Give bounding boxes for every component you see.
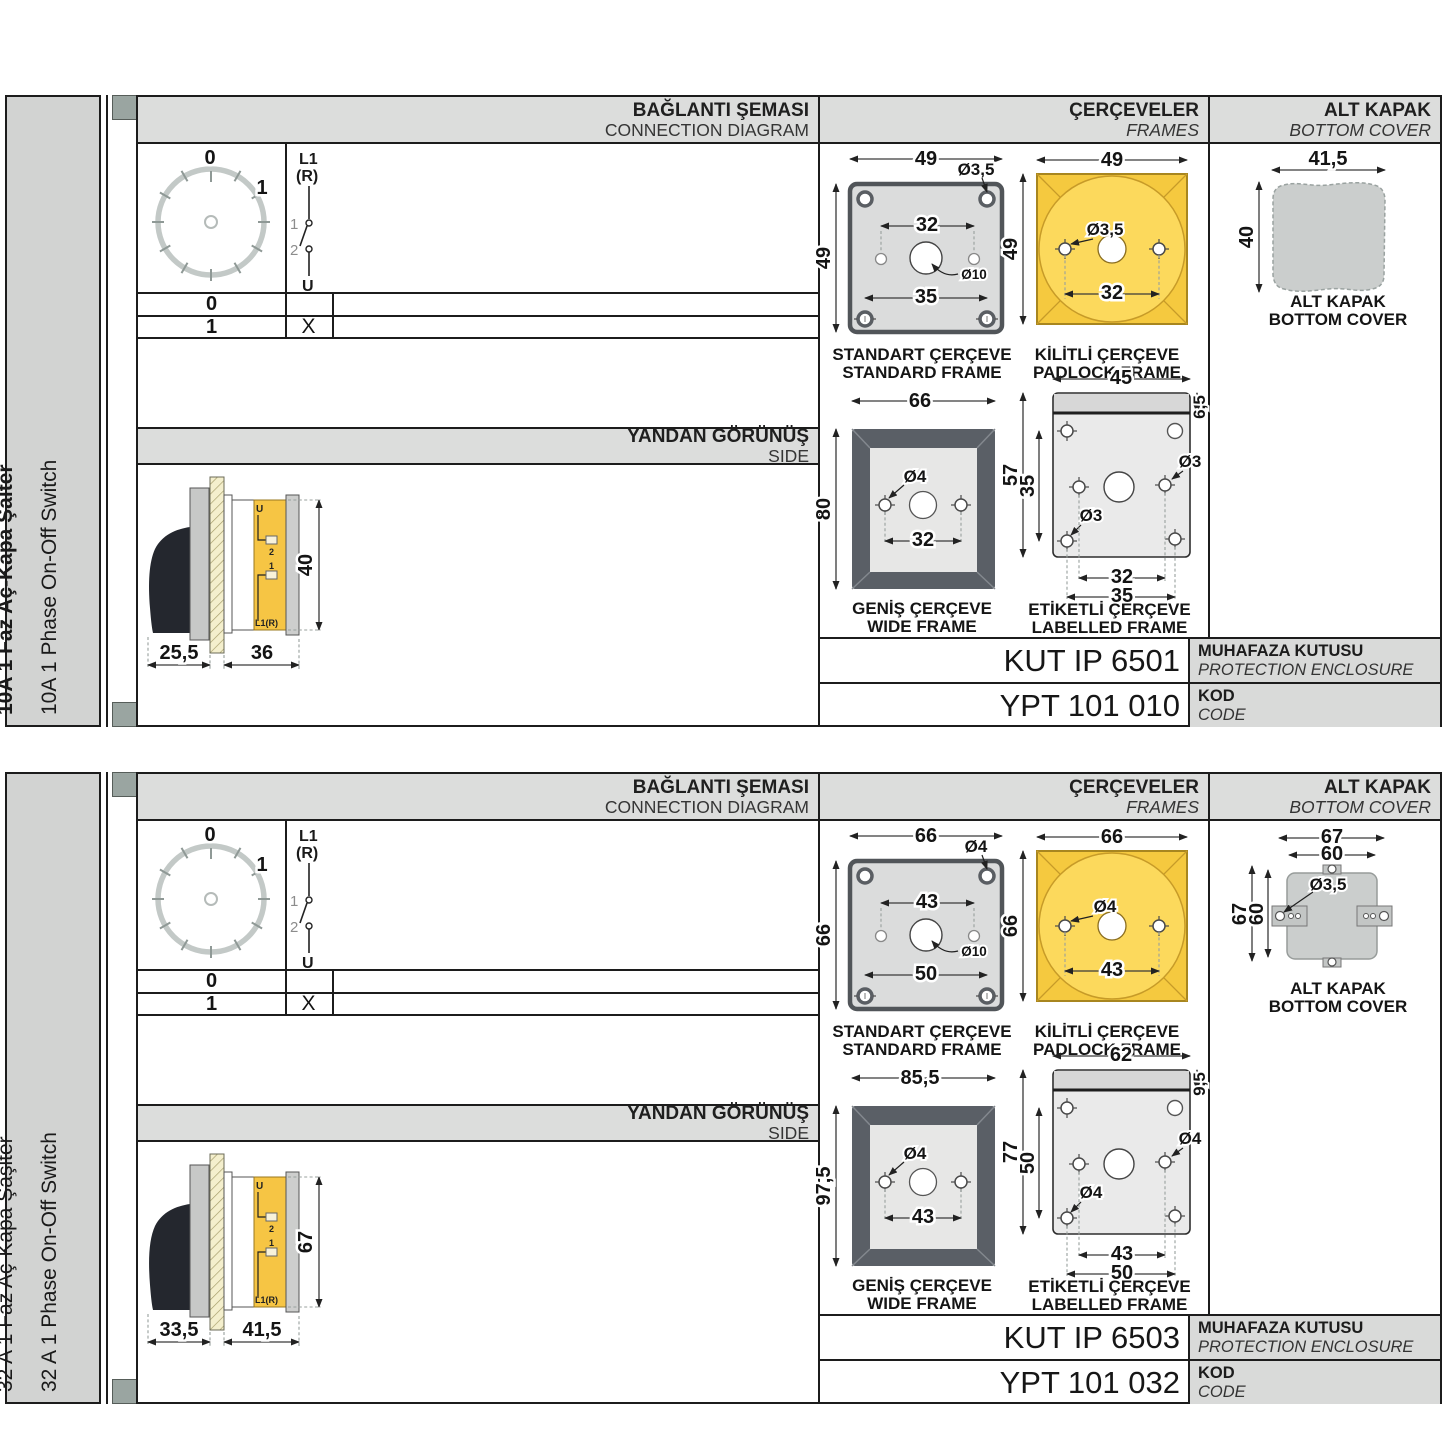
rotary-dial-diagram: 0 1 (138, 144, 285, 292)
body-label-2: 2 (269, 1224, 274, 1234)
labelled-hole-callout-a: Ø3 (1179, 452, 1202, 471)
body-label-l1r: L1(R) (255, 1295, 278, 1305)
switch-body (232, 1177, 254, 1307)
switch-symbol-diagram: L1 (R) U 1 2 (285, 144, 345, 294)
enclosure-label-en: PROTECTION ENCLOSURE (1198, 661, 1440, 680)
wide-hole-callout: Ø4 (904, 1144, 927, 1163)
product-title-english: 32 A 1 Phase On-Off Switch (39, 1132, 61, 1392)
header-connection-en: CONNECTION DIAGRAM (605, 121, 809, 140)
labelled-dim-left-inner: 35 (1017, 475, 1039, 497)
header-side-view: YANDAN GÖRÜNÜŞ SIDE (138, 1104, 818, 1142)
index-strip (106, 95, 136, 727)
enclosure-info-cell: MUHAFAZA KUTUSU PROTECTION ENCLOSURE (1188, 1316, 1440, 1359)
padlock-dim-top: 66 (1101, 826, 1123, 848)
side-dim-height: 40 (295, 554, 317, 576)
wide-dim-inner: 32 (912, 529, 934, 551)
body-label-1: 1 (269, 1238, 274, 1248)
labelled-frame-drawing: 62 9,5 77 50 Ø4 Ø4 43 50 (1007, 1046, 1212, 1286)
labelled-caption-en: LABELLED FRAME (1012, 619, 1207, 637)
cover-caption-en: BOTTOM COVER (1233, 998, 1443, 1016)
padlock-dim-top: 49 (1101, 149, 1123, 171)
labelled-hole-callout-a: Ø4 (1179, 1129, 1202, 1148)
header-frames-en: FRAMES (1126, 121, 1199, 140)
standard-dim-top: 66 (915, 825, 937, 847)
dial-position-1: 1 (256, 177, 267, 199)
product-title-turkish: 32 A 1 Faz Aç-Kapa Şaşlter (0, 1136, 17, 1392)
header-connection-diagram: BAĞLANTI ŞEMASI CONNECTION DIAGRAM (138, 774, 818, 821)
standard-dim-bottom: 50 (915, 963, 937, 985)
standard-caption-en: STANDARD FRAME (827, 1041, 1017, 1059)
wide-frame-drawing: 66 80 Ø4 32 (822, 385, 1022, 635)
catalog-panel: BAĞLANTI ŞEMASI CONNECTION DIAGRAM ÇERÇE… (136, 772, 1442, 1404)
product-title-english: 10A 1 Phase On-Off Switch (39, 460, 61, 715)
switch-body (232, 500, 254, 630)
body-label-u: U (256, 504, 263, 515)
header-side-tr: YANDAN GÖRÜNÜŞ (627, 426, 809, 447)
header-frames-tr: ÇERÇEVELER (1069, 100, 1199, 121)
wide-caption-en: WIDE FRAME (827, 618, 1017, 636)
labelled-caption-tr: ETİKETLİ ÇERÇEVE (1012, 1278, 1207, 1296)
body-label-1: 1 (269, 561, 274, 571)
code-info-cell: KOD CODE (1188, 684, 1440, 727)
handle-plate (190, 1165, 209, 1317)
standard-frame-caption: STANDART ÇERÇEVE STANDARD FRAME (827, 1023, 1017, 1058)
labelled-dim-right: 9,5 (1190, 1072, 1209, 1096)
side-dim-body: 41,5 (243, 1319, 282, 1341)
standard-dim-top: 49 (915, 148, 937, 170)
terminal-r-label: (R) (296, 168, 318, 185)
enclosure-label-tr: MUHAFAZA KUTUSU (1198, 1319, 1440, 1338)
enclosure-label-en: PROTECTION ENCLOSURE (1198, 1338, 1440, 1357)
header-frames: ÇERÇEVELER FRAMES (818, 97, 1208, 144)
contact-2-label: 2 (290, 919, 298, 936)
header-bottom-cover: ALT KAPAK BOTTOM COVER (1208, 97, 1440, 144)
standard-hole-callout: Ø3,5 (958, 160, 995, 179)
standard-caption-en: STANDARD FRAME (827, 364, 1017, 382)
index-tab-bottom (112, 1379, 138, 1404)
switch-handle (149, 1204, 190, 1310)
contact-2-label: 2 (290, 242, 298, 259)
side-view-drawing: U 2 1 L1(R) 40 25,5 36 (142, 463, 422, 681)
labelled-hole-callout-b: Ø4 (1080, 1183, 1103, 1202)
padlock-hole-callout: Ø3,5 (1087, 220, 1124, 239)
padlock-caption-tr: KİLİTLİ ÇERÇEVE (1012, 346, 1202, 364)
side-dim-height: 67 (295, 1231, 317, 1253)
catalog-panel: BAĞLANTI ŞEMASI CONNECTION DIAGRAM ÇERÇE… (136, 95, 1442, 727)
product-title-turkish: 10A 1 Faz Aç-Kapa Şalter (0, 464, 17, 715)
standard-frame-caption: STANDART ÇERÇEVE STANDARD FRAME (827, 346, 1017, 381)
terminal-u-label: U (302, 955, 314, 972)
side-view-drawing: U 2 1 L1(R) 67 33,5 41,5 (142, 1140, 422, 1358)
header-side-view: YANDAN GÖRÜNÜŞ SIDE (138, 427, 818, 465)
wide-dim-inner: 43 (912, 1206, 934, 1228)
product-code: YPT 101 010 (818, 684, 1188, 727)
labelled-frame-caption: ETİKETLİ ÇERÇEVE LABELLED FRAME (1012, 1278, 1207, 1313)
wide-dim-top: 66 (909, 390, 931, 412)
header-bottom-cover: ALT KAPAK BOTTOM COVER (1208, 774, 1440, 821)
enclosure-code: KUT IP 6501 (818, 639, 1188, 682)
index-tab-top (112, 772, 138, 797)
standard-center-callout: Ø10 (961, 267, 987, 282)
wide-dim-top: 85,5 (901, 1067, 940, 1089)
header-connection-en: CONNECTION DIAGRAM (605, 798, 809, 817)
product-code: YPT 101 032 (818, 1361, 1188, 1404)
rotary-dial-diagram: 0 1 (138, 821, 285, 969)
table-row1-position: 1 (138, 994, 285, 1014)
standard-dim-inner: 32 (916, 214, 938, 236)
body-label-u: U (256, 1181, 263, 1192)
index-tab-top (112, 95, 138, 120)
terminal-u-label: U (302, 278, 314, 295)
section-10a-switch: 10A 1 Faz Aç-Kapa Şalter 10A 1 Phase On-… (5, 95, 1442, 727)
handle-plate (190, 488, 209, 640)
terminal-r-label: (R) (296, 845, 318, 862)
enclosure-label-tr: MUHAFAZA KUTUSU (1198, 642, 1440, 661)
dial-position-0: 0 (204, 147, 215, 169)
header-side-en: SIDE (768, 447, 809, 466)
header-frames-en: FRAMES (1126, 798, 1199, 817)
wide-frame-drawing: 85,5 97,5 Ø4 43 (822, 1062, 1022, 1312)
standard-hole-callout: Ø4 (965, 837, 988, 856)
cover-dim-top: 41,5 (1309, 148, 1348, 170)
labelled-dim-top: 62 (1110, 1044, 1132, 1066)
index-strip (106, 772, 136, 1404)
divider-frames (818, 774, 820, 1402)
bottom-cover-caption: ALT KAPAK BOTTOM COVER (1233, 980, 1443, 1015)
contact-1-label: 1 (290, 216, 298, 233)
standard-dim-left: 49 (813, 247, 835, 269)
cover-hole-callout: Ø3,5 (1310, 875, 1347, 894)
standard-center-callout: Ø10 (961, 944, 987, 959)
cover-dim-left: 40 (1236, 226, 1258, 248)
padlock-dim-left: 49 (1000, 238, 1022, 260)
bottom-cover-caption: ALT KAPAK BOTTOM COVER (1238, 293, 1438, 328)
enclosure-info-cell: MUHAFAZA KUTUSU PROTECTION ENCLOSURE (1188, 639, 1440, 682)
contact-1-label: 1 (290, 893, 298, 910)
terminal-l1-label: L1 (299, 828, 318, 845)
header-frames-tr: ÇERÇEVELER (1069, 777, 1199, 798)
switch-symbol-diagram: L1 (R) U 1 2 (285, 821, 345, 971)
side-dim-handle: 25,5 (160, 642, 199, 664)
padlock-hole-callout: Ø4 (1094, 897, 1117, 916)
labelled-frame-caption: ETİKETLİ ÇERÇEVE LABELLED FRAME (1012, 601, 1207, 636)
table-row1-contact-mark: X (285, 994, 332, 1014)
enclosure-code: KUT IP 6503 (818, 1316, 1188, 1359)
wide-caption-en: WIDE FRAME (827, 1295, 1017, 1313)
standard-caption-tr: STANDART ÇERÇEVE (827, 346, 1017, 364)
terminal-l1-label: L1 (299, 151, 318, 168)
labelled-dim-left-inner: 50 (1017, 1152, 1039, 1174)
product-sidebar: 10A 1 Faz Aç-Kapa Şalter 10A 1 Phase On-… (5, 95, 101, 727)
table-row1-position: 1 (138, 317, 285, 337)
side-dim-body: 36 (251, 642, 273, 664)
header-side-tr: YANDAN GÖRÜNÜŞ (627, 1103, 809, 1124)
header-connection-tr: BAĞLANTI ŞEMASI (633, 777, 809, 798)
cover-caption-tr: ALT KAPAK (1233, 980, 1443, 998)
labelled-frame-drawing: 45 6,5 57 35 Ø3 Ø3 32 35 (1007, 369, 1212, 609)
labelled-dim-right: 6,5 (1190, 395, 1209, 419)
cover-caption-tr: ALT KAPAK (1238, 293, 1438, 311)
header-side-en: SIDE (768, 1124, 809, 1143)
code-label-en: CODE (1198, 706, 1440, 725)
padlock-dim-inner: 43 (1101, 959, 1123, 981)
side-dim-handle: 33,5 (160, 1319, 199, 1341)
standard-caption-tr: STANDART ÇERÇEVE (827, 1023, 1017, 1041)
code-label-tr: KOD (1198, 687, 1440, 706)
table-line-bottom (138, 337, 818, 339)
table-row0-position: 0 (138, 971, 285, 992)
header-connection-diagram: BAĞLANTI ŞEMASI CONNECTION DIAGRAM (138, 97, 818, 144)
padlock-dim-left: 66 (1000, 915, 1022, 937)
dial-position-0: 0 (204, 824, 215, 846)
mounting-panel (210, 1154, 224, 1330)
labelled-caption-en: LABELLED FRAME (1012, 1296, 1207, 1314)
cover-caption-en: BOTTOM COVER (1238, 311, 1438, 329)
cover-dim-top-inner: 60 (1321, 843, 1343, 865)
labelled-hole-callout-b: Ø3 (1080, 506, 1103, 525)
table-line-bottom (138, 1014, 818, 1016)
labelled-caption-tr: ETİKETLİ ÇERÇEVE (1012, 601, 1207, 619)
cover-dim-left-inner: 60 (1246, 903, 1268, 925)
wide-frame-caption: GENİŞ ÇERÇEVE WIDE FRAME (827, 600, 1017, 635)
wide-dim-left: 97,5 (813, 1167, 835, 1206)
product-sidebar: 32 A 1 Faz Aç-Kapa Şaşlter 32 A 1 Phase … (5, 772, 101, 1404)
wide-caption-tr: GENİŞ ÇERÇEVE (827, 600, 1017, 618)
bottom-cover-drawing: 67 60 67 60 Ø3,5 (1233, 822, 1443, 982)
standard-dim-bottom: 35 (915, 286, 937, 308)
wide-caption-tr: GENİŞ ÇERÇEVE (827, 1277, 1017, 1295)
bottom-cover-drawing: 41,5 40 (1238, 145, 1438, 305)
mounting-panel (210, 477, 224, 653)
standard-dim-inner: 43 (916, 891, 938, 913)
labelled-dim-top: 45 (1110, 367, 1132, 389)
wide-frame-caption: GENİŞ ÇERÇEVE WIDE FRAME (827, 1277, 1017, 1312)
code-label-en: CODE (1198, 1383, 1440, 1402)
padlock-dim-inner: 32 (1101, 282, 1123, 304)
index-tab-bottom (112, 702, 138, 727)
switch-handle (149, 527, 190, 633)
header-frames: ÇERÇEVELER FRAMES (818, 774, 1208, 821)
header-cover-tr: ALT KAPAK (1324, 777, 1431, 798)
padlock-caption-tr: KİLİTLİ ÇERÇEVE (1012, 1023, 1202, 1041)
table-row1-contact-mark: X (285, 317, 332, 337)
header-connection-tr: BAĞLANTI ŞEMASI (633, 100, 809, 121)
dial-position-1: 1 (256, 854, 267, 876)
wide-dim-left: 80 (813, 498, 835, 520)
header-cover-tr: ALT KAPAK (1324, 100, 1431, 121)
table-row0-position: 0 (138, 294, 285, 315)
body-label-2: 2 (269, 547, 274, 557)
wide-hole-callout: Ø4 (904, 467, 927, 486)
code-label-tr: KOD (1198, 1364, 1440, 1383)
header-cover-en: BOTTOM COVER (1289, 798, 1431, 817)
header-cover-en: BOTTOM COVER (1289, 121, 1431, 140)
section-32a-switch: 32 A 1 Faz Aç-Kapa Şaşlter 32 A 1 Phase … (5, 772, 1442, 1404)
body-label-l1r: L1(R) (255, 618, 278, 628)
code-info-cell: KOD CODE (1188, 1361, 1440, 1404)
standard-dim-left: 66 (813, 924, 835, 946)
divider-frames (818, 97, 820, 725)
